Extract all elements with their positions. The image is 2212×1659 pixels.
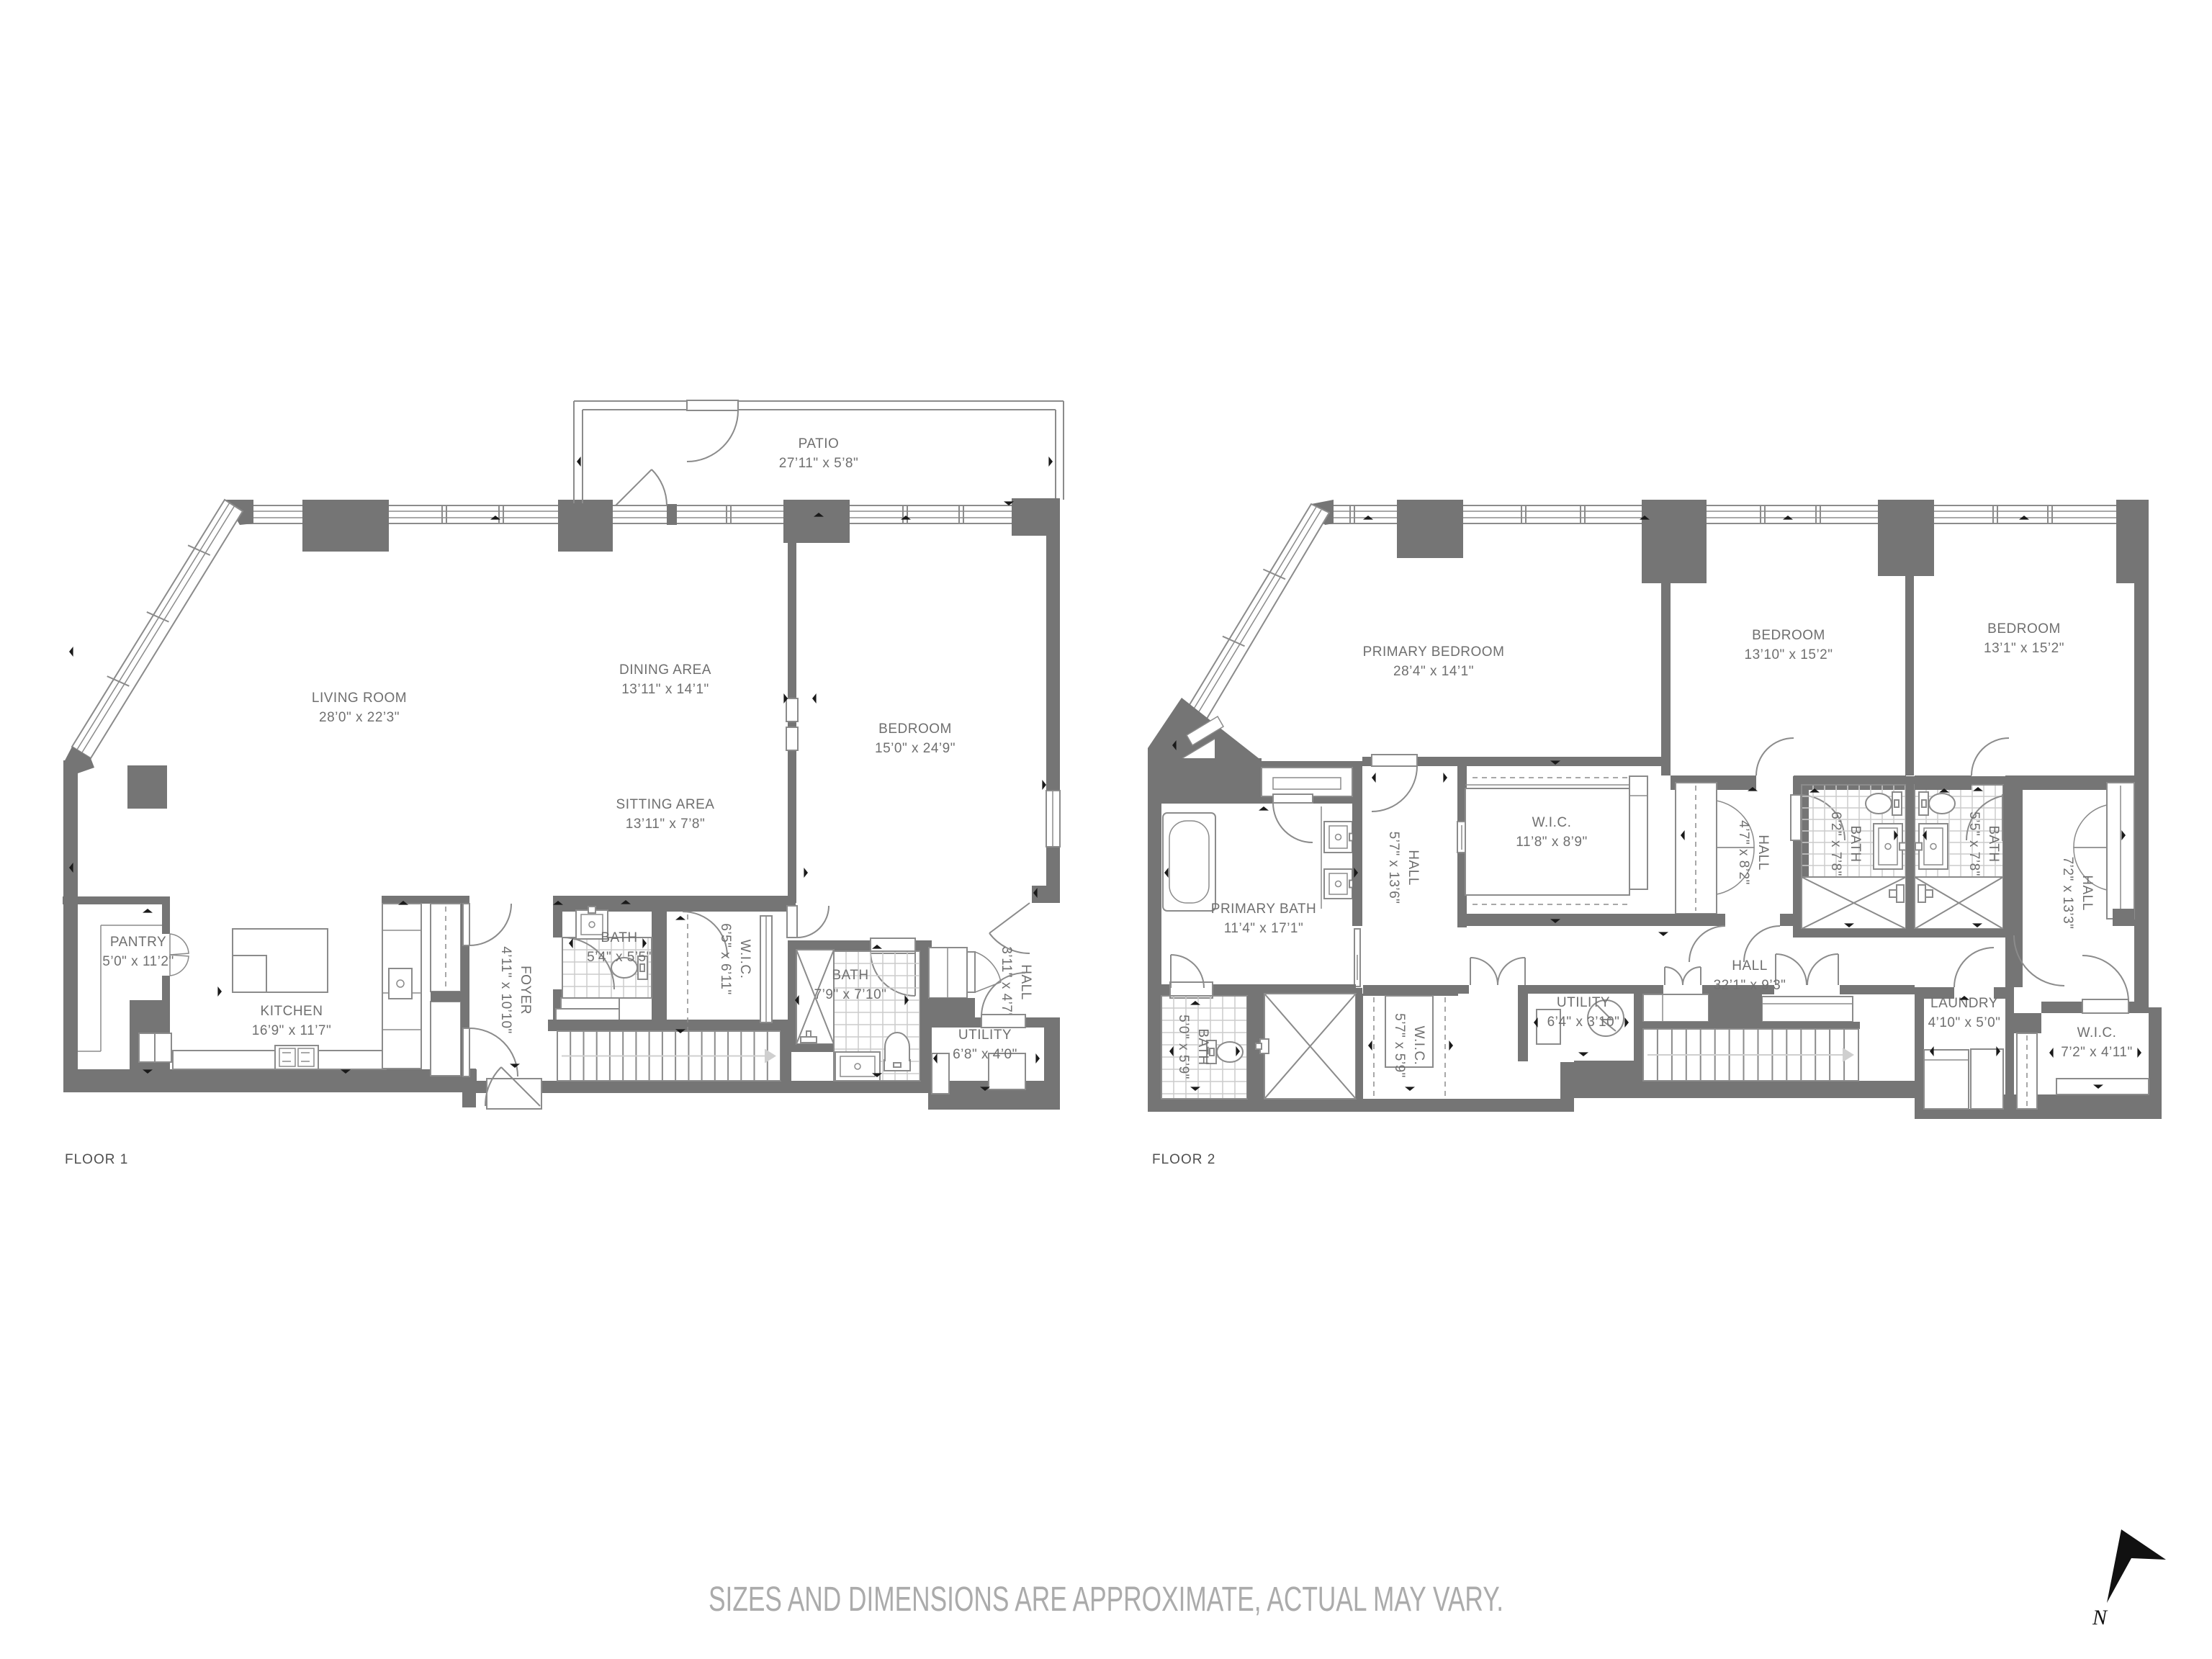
- svg-text:W.I.C.: W.I.C.: [1532, 815, 1572, 830]
- svg-text:UTILITY: UTILITY: [1557, 995, 1610, 1010]
- svg-text:BATH: BATH: [1986, 825, 2001, 862]
- svg-text:BATH: BATH: [1848, 825, 1863, 862]
- svg-text:DINING AREA: DINING AREA: [619, 662, 711, 678]
- svg-text:BEDROOM: BEDROOM: [1752, 628, 1825, 643]
- svg-text:PANTRY: PANTRY: [110, 935, 166, 950]
- svg-text:PATIO: PATIO: [799, 436, 840, 451]
- svg-text:5’4" x 5’5": 5’4" x 5’5": [587, 950, 652, 965]
- svg-text:6’8" x 4’0": 6’8" x 4’0": [953, 1047, 1017, 1062]
- svg-text:32’1" x 9’3": 32’1" x 9’3": [1714, 978, 1786, 993]
- svg-text:HALL: HALL: [1732, 958, 1768, 974]
- svg-text:UTILITY: UTILITY: [958, 1028, 1012, 1043]
- svg-text:W.I.C.: W.I.C.: [737, 940, 752, 979]
- svg-text:15’0" x 24’9": 15’0" x 24’9": [875, 741, 956, 756]
- svg-text:3’11" x 4’7": 3’11" x 4’7": [999, 946, 1014, 1017]
- svg-text:SIZES AND DIMENSIONS ARE APPRO: SIZES AND DIMENSIONS ARE APPROXIMATE, AC…: [709, 1581, 1503, 1619]
- svg-text:BEDROOM: BEDROOM: [878, 721, 952, 737]
- svg-text:6’2" x 7’8": 6’2" x 7’8": [1828, 811, 1843, 876]
- svg-text:HALL: HALL: [1755, 835, 1771, 871]
- svg-text:SITTING AREA: SITTING AREA: [616, 797, 715, 812]
- svg-text:FLOOR 2: FLOOR 2: [1152, 1152, 1215, 1167]
- svg-text:5’5" x 7’8": 5’5" x 7’8": [1966, 811, 1982, 876]
- svg-text:13’10" x 15’2": 13’10" x 15’2": [1745, 647, 1833, 662]
- svg-text:13’11" x 7’8": 13’11" x 7’8": [626, 817, 705, 832]
- svg-text:KITCHEN: KITCHEN: [261, 1004, 323, 1019]
- svg-text:LIVING ROOM: LIVING ROOM: [312, 691, 407, 706]
- svg-text:W.I.C.: W.I.C.: [2077, 1025, 2117, 1040]
- svg-text:FLOOR 1: FLOOR 1: [65, 1152, 128, 1167]
- svg-text:5’7" x 13’6": 5’7" x 13’6": [1386, 832, 1401, 904]
- svg-text:27’11" x 5’8": 27’11" x 5’8": [779, 456, 858, 471]
- svg-text:28’4" x 14’1": 28’4" x 14’1": [1393, 664, 1474, 679]
- svg-text:BEDROOM: BEDROOM: [1987, 621, 2061, 637]
- svg-text:PRIMARY BEDROOM: PRIMARY BEDROOM: [1363, 644, 1505, 660]
- svg-text:PRIMARY BATH: PRIMARY BATH: [1211, 902, 1316, 917]
- svg-text:7’2" x 4’11": 7’2" x 4’11": [2061, 1045, 2132, 1060]
- svg-text:11’8" x 8’9": 11’8" x 8’9": [1516, 835, 1587, 850]
- svg-text:5’7" x 5’9": 5’7" x 5’9": [1392, 1013, 1407, 1078]
- svg-text:4’11" x 10’10": 4’11" x 10’10": [498, 946, 513, 1034]
- svg-text:BATH: BATH: [832, 968, 868, 983]
- svg-text:5’0" x 5’9": 5’0" x 5’9": [1176, 1015, 1191, 1079]
- svg-text:HALL: HALL: [2080, 875, 2095, 911]
- svg-text:N: N: [2092, 1606, 2108, 1629]
- svg-text:FOYER: FOYER: [518, 966, 533, 1015]
- svg-text:28’0" x 22’3": 28’0" x 22’3": [319, 710, 400, 725]
- svg-text:W.I.C.: W.I.C.: [1411, 1026, 1426, 1066]
- svg-text:4’10" x 5’0": 4’10" x 5’0": [1928, 1015, 2001, 1030]
- svg-text:HALL: HALL: [1018, 964, 1033, 1000]
- svg-text:6’5" x 6’11": 6’5" x 6’11": [718, 923, 733, 994]
- svg-text:13’1" x 15’2": 13’1" x 15’2": [1984, 641, 2064, 656]
- svg-text:13’11" x 14’1": 13’11" x 14’1": [621, 682, 709, 697]
- svg-text:6’4" x 3’10": 6’4" x 3’10": [1547, 1015, 1620, 1030]
- svg-text:HALL: HALL: [1406, 850, 1421, 886]
- svg-text:4’7" x 8’2": 4’7" x 8’2": [1736, 820, 1751, 885]
- svg-text:BATH: BATH: [1195, 1028, 1210, 1065]
- svg-text:7’2" x 13’3": 7’2" x 13’3": [2060, 857, 2075, 930]
- svg-text:7’9" x 7’10": 7’9" x 7’10": [814, 987, 887, 1002]
- svg-text:5’0" x 11’2": 5’0" x 11’2": [102, 954, 174, 969]
- svg-text:11’4" x 17’1": 11’4" x 17’1": [1224, 921, 1303, 936]
- svg-text:BATH: BATH: [601, 930, 637, 945]
- svg-text:16’9" x 11’7": 16’9" x 11’7": [252, 1023, 331, 1038]
